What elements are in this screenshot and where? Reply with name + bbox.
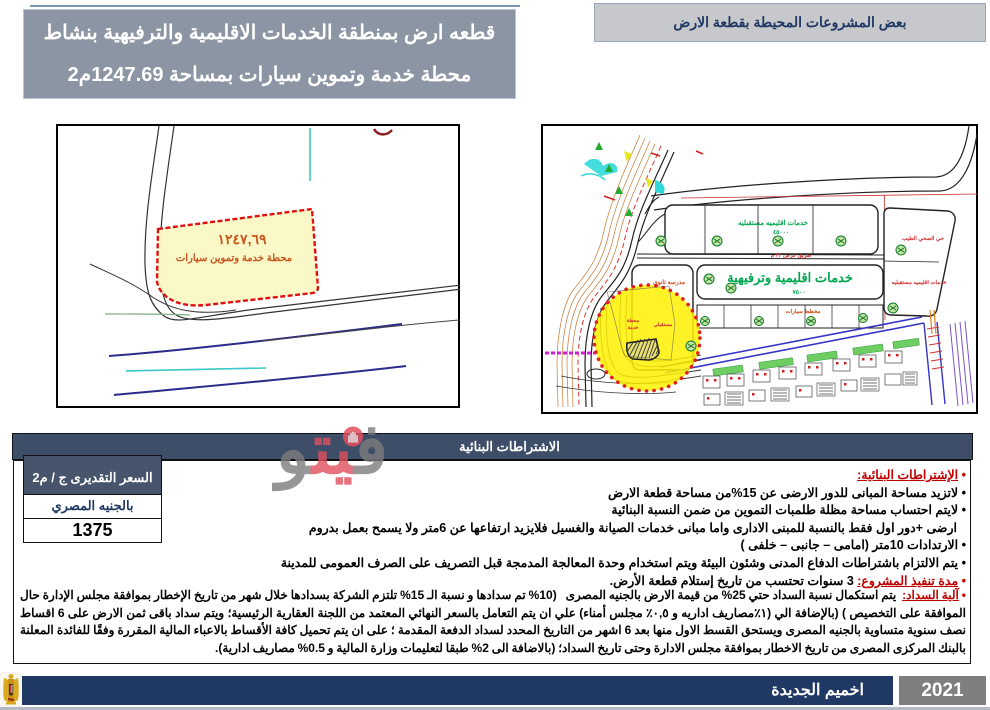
svg-text:مستقبلي: مستقبلي [654, 322, 673, 328]
svg-text:محطة خدمة وتموين سيارات: محطة خدمة وتموين سيارات [176, 253, 292, 264]
svg-text:خدمات اقليميه مستقبليه: خدمات اقليميه مستقبليه [892, 279, 948, 286]
svg-text:٤٥٠٠٠: ٤٥٠٠٠ [773, 230, 789, 236]
svg-text:مدرسه ثانوي: مدرسه ثانوي [653, 279, 685, 286]
svg-text:٧٥٠٠: ٧٥٠٠ [792, 290, 806, 296]
svg-text:طريق عرض ٢٢ م: طريق عرض ٢٢ م [771, 252, 812, 259]
svg-text:حي الصحي الطيب: حي الصحي الطيب [902, 235, 945, 242]
svg-text:خدمات اقليمية وترفيهية: خدمات اقليمية وترفيهية [727, 270, 853, 286]
svg-text:مخطط سيارات: مخطط سيارات [785, 308, 820, 315]
svg-text:محطة: محطة [627, 318, 640, 324]
svg-text:خدمة: خدمة [627, 325, 638, 331]
svg-text:خدمات اقليميه مستقبليه: خدمات اقليميه مستقبليه [738, 219, 808, 227]
svg-text:١٢٤٧,٦٩: ١٢٤٧,٦٩ [217, 231, 266, 247]
